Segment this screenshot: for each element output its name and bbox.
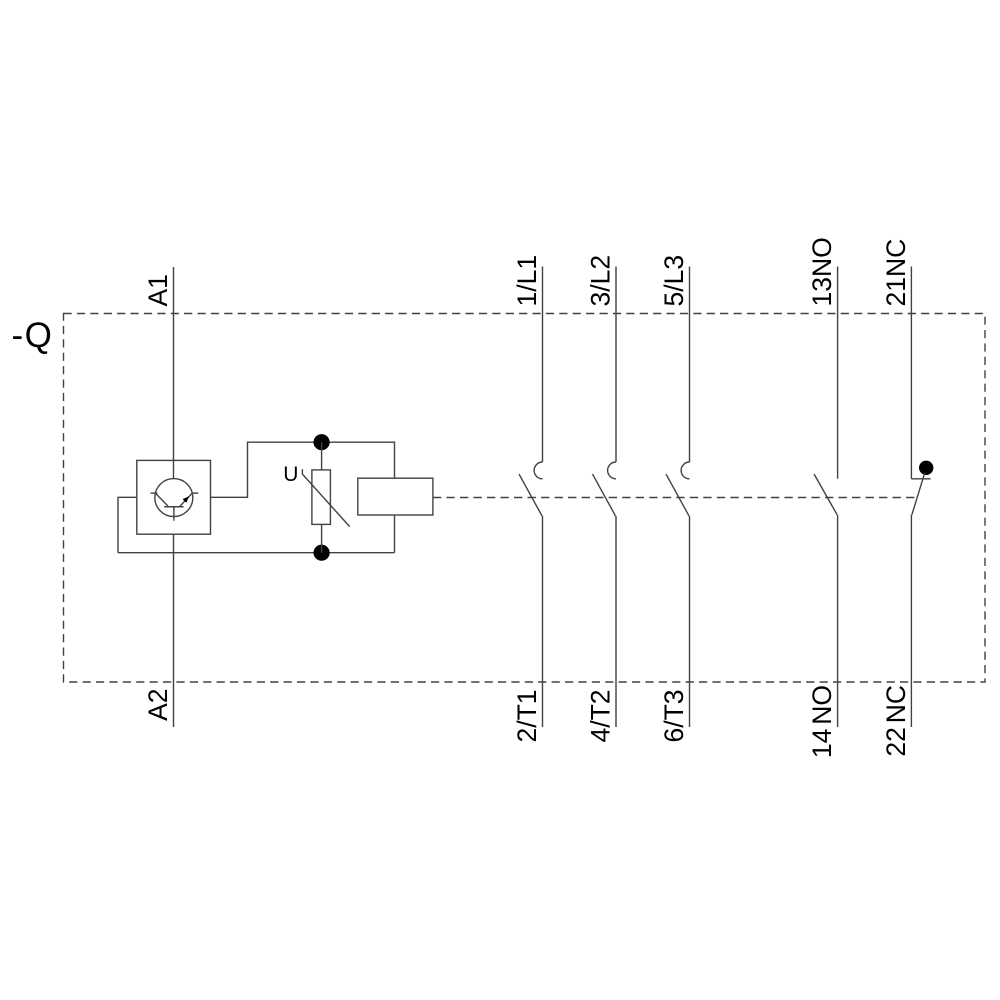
svg-text:14 NO: 14 NO — [807, 685, 837, 758]
svg-text:A2: A2 — [143, 689, 173, 721]
svg-text:1/L1: 1/L1 — [512, 255, 542, 307]
svg-text:3/L2: 3/L2 — [586, 255, 616, 307]
svg-text:6/T3: 6/T3 — [659, 690, 689, 743]
svg-text:13NO: 13NO — [807, 237, 837, 306]
svg-text:U: U — [283, 463, 298, 486]
svg-text:4/T2: 4/T2 — [586, 690, 616, 743]
svg-text:21NC: 21NC — [881, 239, 911, 307]
svg-text:2/T1: 2/T1 — [512, 690, 542, 743]
svg-text:22 NC: 22 NC — [881, 685, 911, 757]
svg-text:-Q: -Q — [12, 316, 54, 355]
svg-text:5/L3: 5/L3 — [659, 255, 689, 307]
svg-text:A1: A1 — [143, 274, 173, 306]
